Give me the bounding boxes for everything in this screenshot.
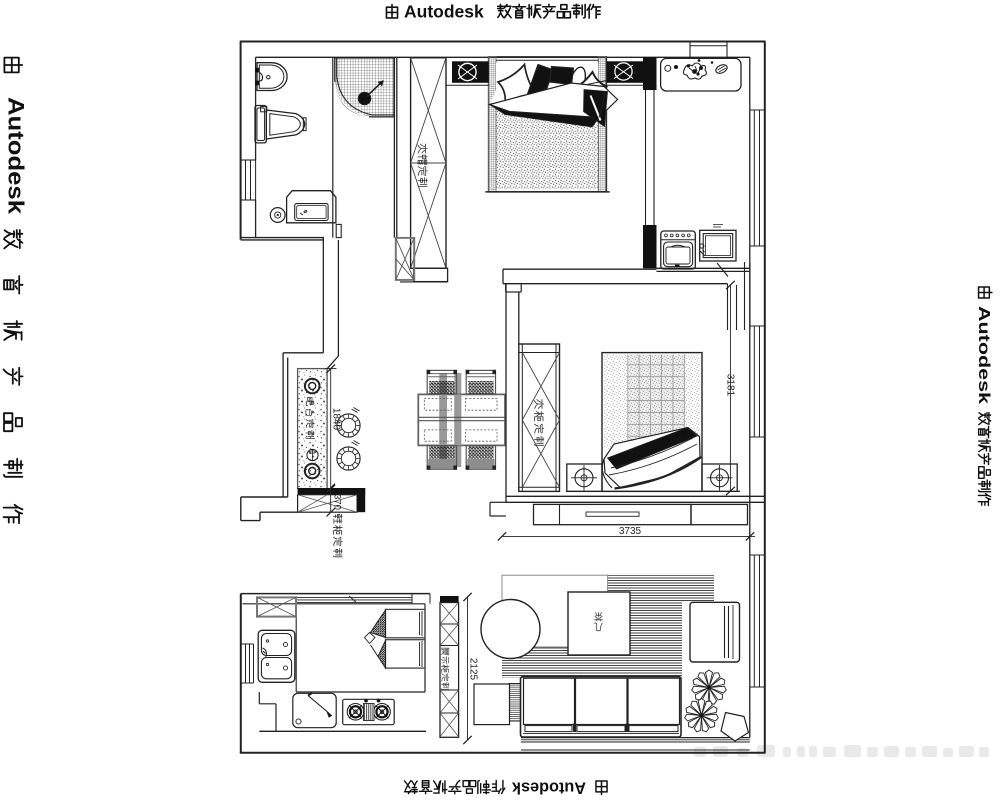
svg-text:Autodesk: Autodesk bbox=[511, 779, 586, 798]
svg-text:3181: 3181 bbox=[725, 374, 736, 397]
svg-text:1840: 1840 bbox=[331, 408, 342, 431]
svg-text:370: 370 bbox=[332, 494, 343, 510]
svg-text:Autodesk: Autodesk bbox=[4, 97, 29, 215]
svg-text:3735: 3735 bbox=[619, 526, 642, 537]
svg-text:2125: 2125 bbox=[468, 658, 479, 681]
svg-text:Autodesk: Autodesk bbox=[404, 2, 484, 22]
svg-text:Autodesk: Autodesk bbox=[975, 306, 992, 404]
